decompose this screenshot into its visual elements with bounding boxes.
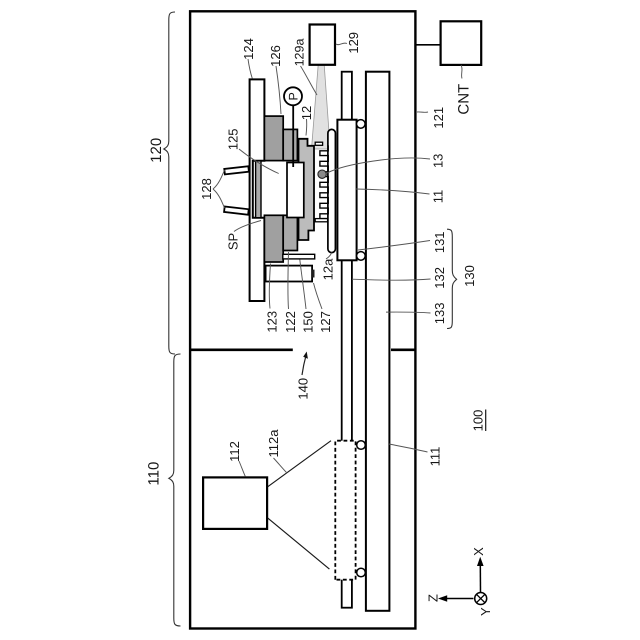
svg-text:12a: 12a: [320, 258, 335, 280]
svg-text:Z: Z: [425, 594, 440, 602]
svg-text:112: 112: [227, 441, 242, 462]
svg-text:CNT: CNT: [455, 84, 472, 115]
svg-text:123: 123: [264, 311, 279, 333]
svg-text:SP: SP: [226, 233, 241, 250]
svg-text:11: 11: [431, 190, 446, 204]
svg-text:100: 100: [470, 410, 485, 432]
svg-text:132: 132: [432, 267, 447, 289]
svg-text:12: 12: [299, 106, 314, 120]
svg-text:X: X: [471, 547, 486, 556]
svg-text:Y: Y: [478, 607, 493, 616]
svg-text:110: 110: [146, 462, 163, 486]
svg-text:111: 111: [428, 447, 443, 467]
svg-text:140: 140: [296, 378, 311, 400]
svg-text:121: 121: [431, 107, 446, 129]
svg-text:126: 126: [268, 45, 283, 67]
svg-text:131: 131: [432, 231, 447, 253]
svg-text:13: 13: [430, 154, 445, 168]
svg-text:122: 122: [283, 311, 298, 333]
svg-text:120: 120: [148, 138, 165, 163]
svg-text:130: 130: [462, 265, 477, 287]
svg-text:125: 125: [226, 128, 241, 150]
svg-text:127: 127: [318, 311, 333, 333]
svg-text:128: 128: [199, 178, 214, 200]
svg-text:112a: 112a: [266, 429, 281, 458]
svg-text:133: 133: [432, 303, 447, 325]
svg-text:129a: 129a: [293, 39, 307, 67]
svg-text:124: 124: [241, 38, 256, 60]
svg-text:P: P: [287, 92, 301, 100]
svg-text:129: 129: [346, 32, 361, 54]
svg-text:150: 150: [300, 311, 315, 333]
